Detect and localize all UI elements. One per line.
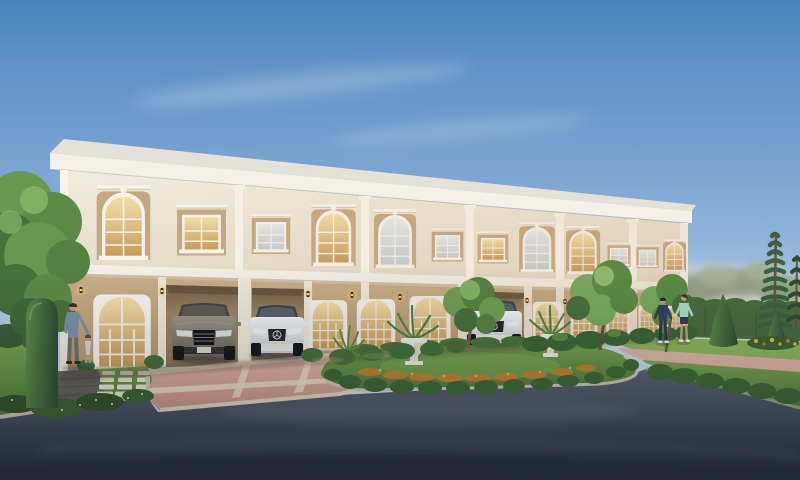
render-canvas [0,0,800,480]
vignette [0,0,800,480]
architectural-render [0,0,800,480]
